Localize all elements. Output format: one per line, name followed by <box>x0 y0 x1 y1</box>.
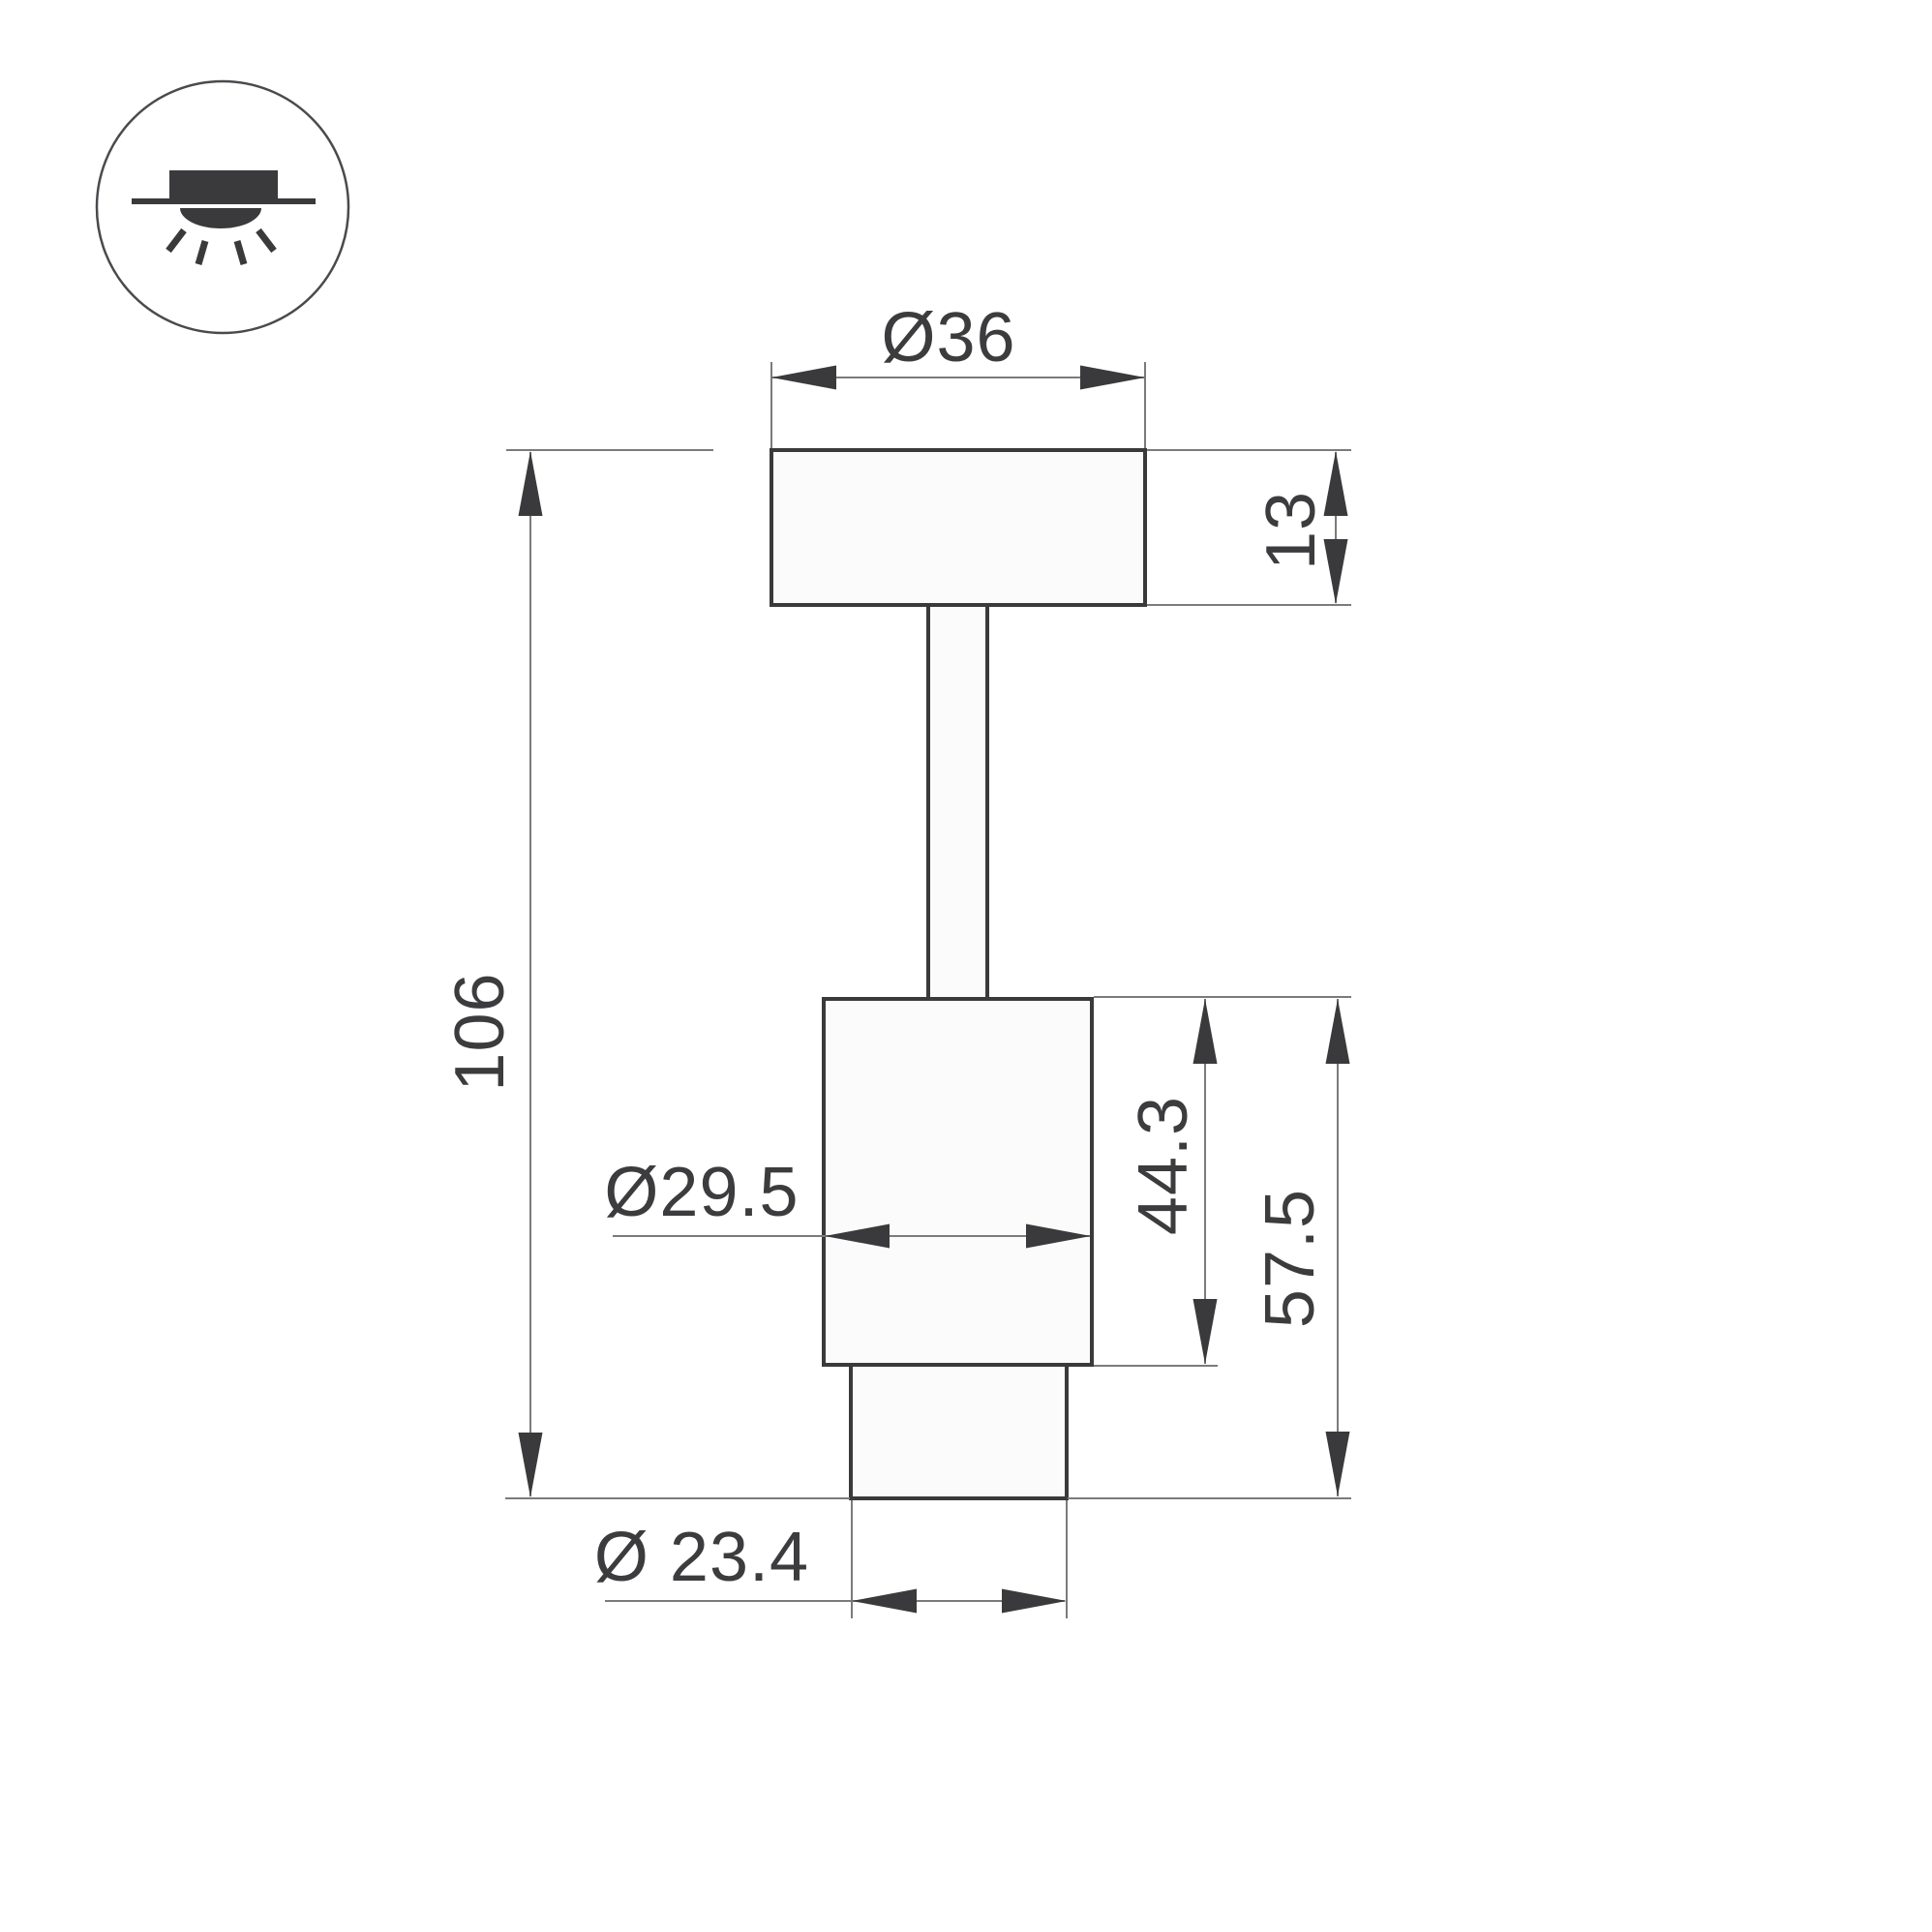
icon-lamp-dome <box>180 208 261 228</box>
arrow-up-icon <box>1193 999 1218 1064</box>
arrow-down-icon <box>1193 1299 1218 1364</box>
label-body-with-nozzle-height: 57.5 <box>1252 1189 1329 1328</box>
fixture-mounting-plate <box>771 450 1145 605</box>
arrow-down-icon <box>1326 1432 1350 1496</box>
arrow-up-icon <box>1326 999 1350 1064</box>
label-body-diameter: Ø29.5 <box>604 1154 799 1231</box>
arrow-left-icon <box>771 366 836 390</box>
dimension-nozzle-diameter: Ø 23.4 <box>594 1519 1067 1614</box>
label-nozzle-diameter: Ø 23.4 <box>594 1519 809 1596</box>
icon-circle-border <box>97 81 348 333</box>
surface-mounted-ceiling-light-icon <box>97 81 348 333</box>
arrow-right-icon <box>1002 1589 1067 1614</box>
drawing-sheet: Ø36 13 106 Ø29.5 44.3 <box>0 0 1932 1932</box>
arrow-right-icon <box>1080 366 1145 390</box>
dimension-body-with-nozzle-height: 57.5 <box>1252 999 1350 1496</box>
label-total-height: 106 <box>441 972 519 1091</box>
fixture-stem <box>928 605 987 999</box>
icon-lamp-housing <box>169 170 278 202</box>
icon-ceiling-line <box>132 198 316 204</box>
icon-light-ray <box>237 241 244 264</box>
arrow-down-icon <box>519 1433 543 1497</box>
label-body-height: 44.3 <box>1125 1096 1202 1235</box>
technical-drawing: Ø36 13 106 Ø29.5 44.3 <box>0 0 1932 1932</box>
fixture-nozzle <box>851 1365 1067 1498</box>
label-plate-height: 13 <box>1253 491 1330 570</box>
arrow-left-icon <box>852 1589 917 1614</box>
icon-light-ray <box>168 230 184 251</box>
icon-light-ray <box>258 230 274 251</box>
fixture-outline <box>771 450 1145 1498</box>
icon-light-ray <box>198 241 205 264</box>
arrow-up-icon <box>519 451 543 516</box>
dimension-body-height: 44.3 <box>1125 999 1218 1364</box>
dimension-total-height: 106 <box>441 451 543 1497</box>
label-plate-diameter: Ø36 <box>881 299 1015 377</box>
dimension-plate-diameter: Ø36 <box>771 299 1145 390</box>
fixture-body <box>824 999 1092 1365</box>
dimension-plate-height: 13 <box>1253 451 1348 604</box>
